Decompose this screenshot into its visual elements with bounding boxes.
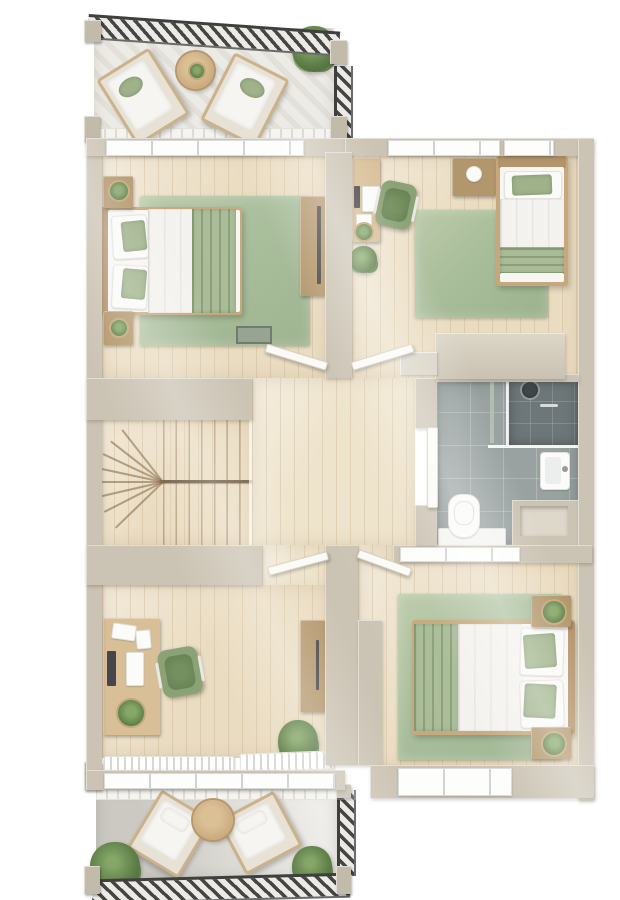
wall-bathroom-left-lower bbox=[415, 505, 437, 545]
papers bbox=[111, 622, 137, 641]
hallway-floor bbox=[252, 378, 415, 545]
wall-master-stairs bbox=[86, 378, 252, 420]
balcony-post bbox=[336, 866, 351, 894]
duvet bbox=[500, 199, 564, 249]
balcony-south-railing-right bbox=[337, 790, 356, 876]
single-bedroom-window-north-2 bbox=[504, 140, 554, 156]
wall-below-stairs bbox=[86, 545, 262, 585]
bedroom-south-window-south bbox=[398, 768, 512, 796]
green-blanket bbox=[500, 247, 564, 274]
mattress-foot bbox=[500, 273, 564, 282]
glass-screen-horizontal bbox=[488, 445, 578, 448]
accent-pillow bbox=[523, 633, 557, 669]
balcony-post bbox=[84, 866, 100, 894]
wall-art bbox=[236, 326, 272, 344]
wall-exterior-right bbox=[578, 138, 594, 800]
nightstand-plant bbox=[541, 731, 567, 757]
storage-niche bbox=[512, 500, 578, 545]
nightstand-plant bbox=[109, 318, 129, 338]
wall-bedroom-south-left bbox=[358, 620, 382, 765]
balcony-post bbox=[84, 20, 101, 42]
duvet bbox=[148, 209, 194, 313]
washbasin bbox=[540, 452, 570, 490]
tall-cabinet bbox=[300, 620, 325, 712]
floor-plan bbox=[0, 0, 620, 900]
accent-pillow bbox=[523, 683, 557, 719]
laptop-screen bbox=[126, 652, 144, 686]
shower-glass-screen bbox=[506, 380, 509, 446]
shower-mixer bbox=[540, 404, 558, 407]
accent-pillow bbox=[120, 220, 147, 252]
round-table bbox=[193, 800, 233, 840]
laptop-base bbox=[354, 186, 360, 208]
chair-seat bbox=[163, 653, 196, 691]
table-plant bbox=[188, 62, 206, 80]
master-window-north bbox=[106, 140, 304, 156]
glass-panel-green bbox=[490, 381, 494, 443]
south-double-bed bbox=[412, 620, 575, 735]
desk-plant bbox=[354, 222, 374, 242]
accent-pillow bbox=[512, 174, 553, 195]
bedroom-south-window-interior bbox=[400, 547, 520, 562]
sideboard bbox=[300, 196, 325, 296]
desk-plant bbox=[116, 698, 146, 728]
laptop-base bbox=[107, 651, 116, 686]
door-bathroom bbox=[427, 427, 438, 508]
office-chair bbox=[156, 645, 204, 699]
accent-pillow bbox=[121, 268, 148, 300]
papers bbox=[135, 629, 152, 649]
pony-wall-ledge bbox=[400, 352, 437, 375]
duvet bbox=[458, 624, 522, 731]
wall-office-bedroom-divider bbox=[325, 545, 358, 765]
decor-tray bbox=[466, 166, 482, 182]
wall-divider-top-bedrooms bbox=[325, 152, 352, 378]
single-bed bbox=[496, 156, 568, 286]
chair-seat bbox=[380, 187, 411, 224]
stair-flight-divider bbox=[160, 480, 252, 483]
cabinet-handle bbox=[316, 640, 319, 690]
office-window-south bbox=[104, 773, 335, 789]
single-bedroom-window-north bbox=[388, 140, 500, 156]
wall-bathroom-left-upper bbox=[415, 378, 437, 428]
balcony-post bbox=[330, 40, 347, 64]
stairwell bbox=[100, 420, 252, 545]
shower-head bbox=[522, 382, 538, 398]
niche-shelf bbox=[520, 506, 568, 536]
wall-exterior-left bbox=[86, 138, 102, 772]
toilet bbox=[448, 494, 480, 538]
nightstand-plant bbox=[541, 599, 567, 625]
stair-edge-highlight bbox=[249, 420, 252, 545]
basin-bowl bbox=[545, 457, 561, 484]
green-blanket bbox=[192, 209, 236, 313]
built-in-closet bbox=[435, 333, 565, 379]
toilet-seat-line bbox=[454, 501, 474, 525]
basin-faucet bbox=[562, 466, 568, 472]
shower-area bbox=[508, 380, 578, 446]
stair-winder-tread bbox=[115, 481, 164, 528]
master-double-bed bbox=[100, 207, 242, 315]
tv bbox=[317, 206, 321, 284]
green-blanket bbox=[414, 624, 460, 731]
floor-plant bbox=[350, 246, 377, 273]
balcony-north bbox=[0, 0, 620, 148]
nightstand-plant bbox=[108, 180, 130, 202]
